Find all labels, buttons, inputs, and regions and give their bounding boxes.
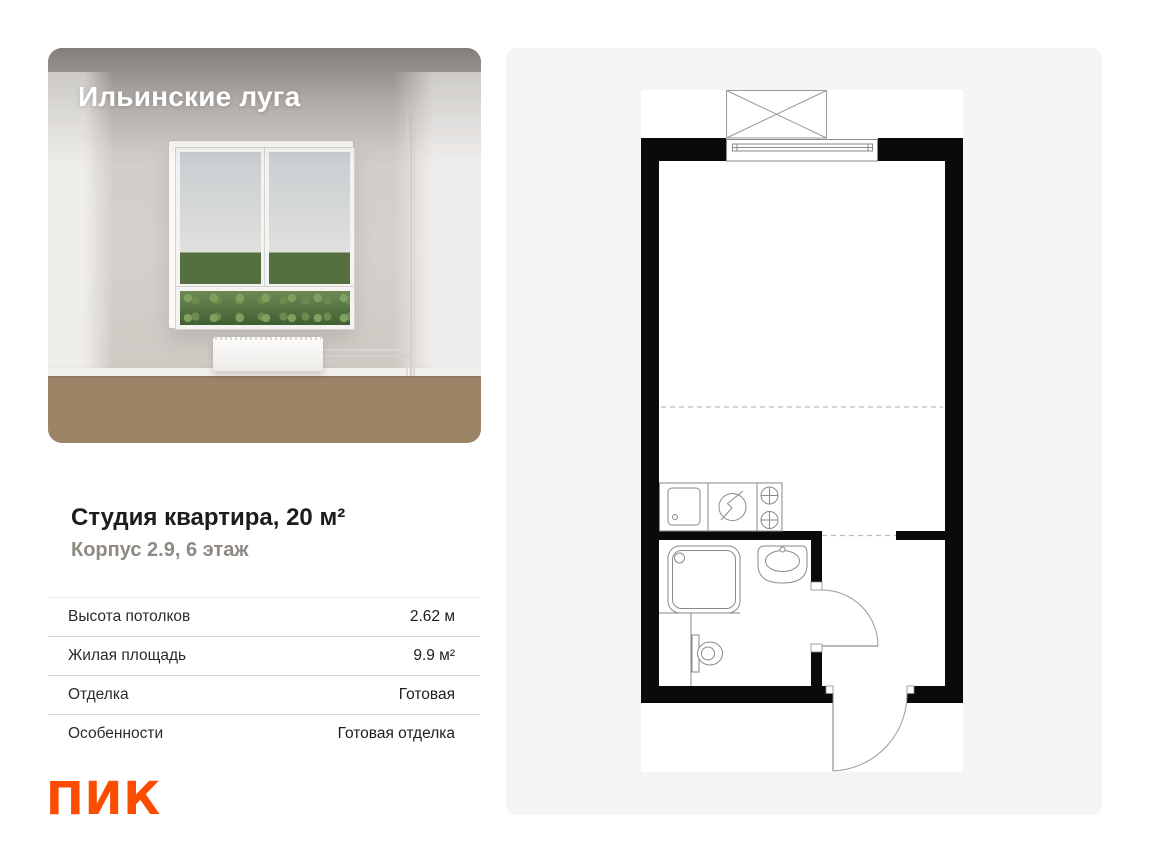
balcony-icon	[727, 91, 827, 139]
spec-row-living-area: Жилая площадь 9.9 м²	[48, 636, 480, 675]
spec-value: 2.62 м	[410, 608, 480, 626]
pik-logo: ПИК	[46, 776, 161, 821]
spec-label: Высота потолков	[48, 608, 190, 626]
spec-value: 9.9 м²	[413, 647, 480, 665]
listing-subtitle: Корпус 2.9, 6 этаж	[71, 539, 249, 562]
listing-title: Студия квартира, 20 м²	[71, 504, 345, 532]
spec-label: Жилая площадь	[48, 647, 186, 665]
entry-door-icon	[833, 694, 907, 772]
spec-row-ceiling-height: Высота потолков 2.62 м	[48, 597, 480, 636]
floorplan-panel	[506, 48, 1102, 815]
spec-label: Отделка	[48, 686, 129, 704]
washbasin-icon	[758, 546, 807, 583]
floorplan-drawing	[641, 90, 963, 772]
spec-value: Готовая	[399, 686, 480, 704]
spec-value: Готовая отделка	[338, 725, 480, 743]
listing-card: Ильинские луга Студия квартира, 20 м² Ко…	[0, 0, 1150, 863]
project-name-overlay: Ильинские луга	[78, 81, 300, 113]
toilet-icon	[692, 635, 723, 672]
shower-icon	[668, 546, 740, 613]
bathroom-door-icon	[822, 590, 878, 646]
spec-row-finishing: Отделка Готовая	[48, 675, 480, 714]
spec-label: Особенности	[48, 725, 163, 743]
door-jambs	[811, 582, 914, 694]
kitchen-counter	[660, 483, 783, 531]
specs-table: Высота потолков 2.62 м Жилая площадь 9.9…	[48, 597, 480, 753]
floorplan	[641, 90, 963, 772]
outer-walls	[641, 138, 963, 703]
plan-window-icon	[727, 140, 878, 162]
apartment-photo: Ильинские луга	[48, 48, 481, 443]
spec-row-features: Особенности Готовая отделка	[48, 714, 480, 753]
